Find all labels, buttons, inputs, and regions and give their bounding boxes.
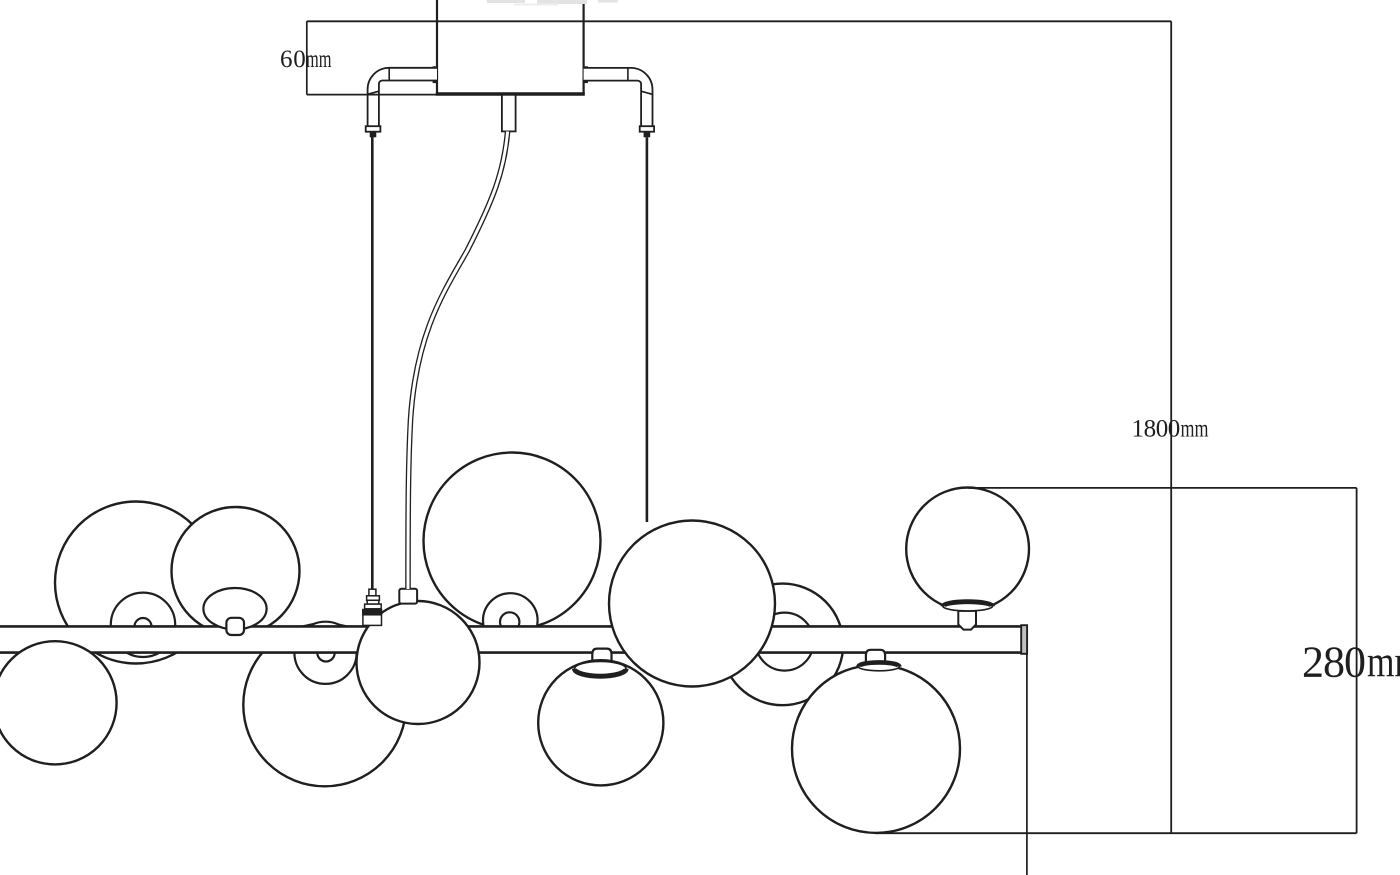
svg-text:mm: mm: [1181, 416, 1209, 443]
svg-text:mm: mm: [1367, 638, 1400, 687]
svg-text:280: 280: [1302, 638, 1366, 687]
svg-text:60: 60: [280, 46, 306, 73]
svg-text:mm: mm: [306, 46, 332, 73]
svg-text:1800: 1800: [1132, 416, 1181, 443]
